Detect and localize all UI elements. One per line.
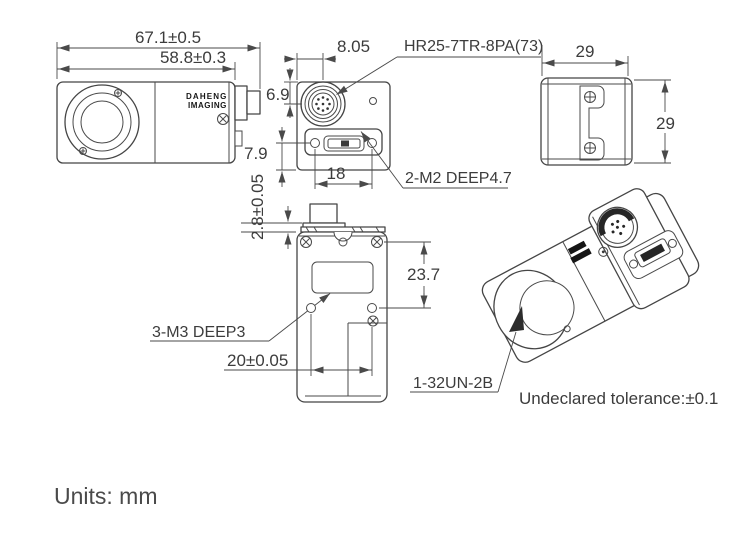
dim-connector-offset-x: 8.05 <box>284 37 370 80</box>
m3-hole-left <box>307 304 316 313</box>
rear-connector-barrel <box>247 91 260 114</box>
tolerance-note: Undeclared tolerance:±0.1 <box>519 389 718 408</box>
svg-text:8.05: 8.05 <box>337 37 370 56</box>
svg-text:29: 29 <box>656 114 675 133</box>
camera-dimension-drawing: DAHENG IMAGING 67.1±0.5 58.8±0.3 <box>0 0 743 550</box>
side-view: DAHENG IMAGING 67.1±0.5 58.8±0.3 <box>57 28 260 163</box>
screw-mark <box>80 148 87 155</box>
brand-logo-line2: IMAGING <box>188 101 226 110</box>
bottom-view: 2.8±0.05 23.7 20±0.05 3-M3 DEEP3 <box>150 174 440 402</box>
dim-body-height: 29 <box>634 80 675 163</box>
rear-tab <box>235 131 242 146</box>
isometric-view: 1-32UN-2B Undeclared tolerance:±0.1 <box>410 179 718 408</box>
svg-text:7.9: 7.9 <box>244 144 268 163</box>
units-label: Units: mm <box>54 483 158 509</box>
right-side-view: 29 29 <box>541 42 675 165</box>
svg-text:23.7: 23.7 <box>407 265 440 284</box>
camera-body-bottom <box>297 232 387 402</box>
rear-connector-view: 8.05 6.9 7.9 18 <box>244 37 543 189</box>
mechanical-drawing-page: DAHENG IMAGING 67.1±0.5 58.8±0.3 <box>0 0 743 550</box>
screw-mark <box>585 143 596 154</box>
svg-text:67.1±0.5: 67.1±0.5 <box>135 28 201 47</box>
rear-connector-block <box>235 86 247 120</box>
connector-barrel-bottom <box>310 204 337 223</box>
svg-text:20±0.05: 20±0.05 <box>227 351 288 370</box>
dim-m3-offset-y: 23.7 <box>379 242 440 308</box>
svg-text:1-32UN-2B: 1-32UN-2B <box>413 375 493 392</box>
svg-text:3-M3 DEEP3: 3-M3 DEEP3 <box>152 324 245 341</box>
flange-plate <box>301 227 385 232</box>
svg-text:2.8±0.05: 2.8±0.05 <box>248 174 267 240</box>
dim-body-width: 29 <box>542 42 628 76</box>
dim-flange-thickness: 2.8±0.05 <box>241 174 302 249</box>
svg-text:58.8±0.3: 58.8±0.3 <box>160 48 226 67</box>
screw-mark <box>585 92 596 103</box>
svg-text:29: 29 <box>576 42 595 61</box>
svg-text:HR25-7TR-8PA(73): HR25-7TR-8PA(73) <box>404 38 543 55</box>
svg-text:6.9: 6.9 <box>266 85 290 104</box>
screw-mark <box>115 90 122 97</box>
brand-logo-line1: DAHENG <box>186 92 226 101</box>
svg-text:18: 18 <box>327 164 346 183</box>
m3-hole-right <box>368 304 377 313</box>
svg-text:2-M2 DEEP4.7: 2-M2 DEEP4.7 <box>405 170 512 187</box>
dim-outer-length: 67.1±0.5 <box>57 28 260 89</box>
dim-inner-length: 58.8±0.3 <box>57 48 235 80</box>
